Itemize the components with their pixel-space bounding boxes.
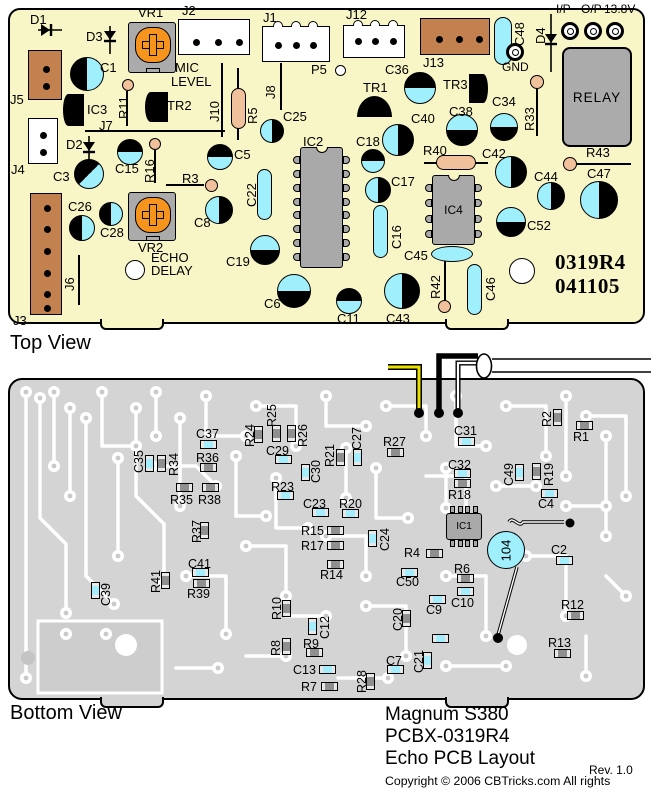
cap-c22 — [257, 169, 272, 220]
label-r34: R34 — [168, 453, 181, 476]
connector-j5 — [28, 50, 62, 100]
hole — [509, 258, 535, 284]
label-j5: J5 — [10, 93, 24, 106]
via-pad-center — [100, 390, 105, 395]
connector-j2 — [178, 19, 250, 55]
label-r43: R43 — [586, 146, 610, 159]
via-pad-center — [444, 574, 449, 579]
label-c21: C21 — [413, 650, 426, 673]
label-c15: C15 — [115, 162, 139, 175]
smd-r12 — [567, 611, 584, 620]
label-j4: J4 — [11, 163, 25, 176]
cap-c1 — [70, 57, 104, 91]
connector-j2-detail — [193, 39, 200, 46]
via-pad-center — [234, 454, 239, 459]
label-r35: R35 — [170, 494, 193, 507]
via-pad-center — [534, 484, 539, 489]
connector-j12-detail — [355, 38, 362, 45]
ic-ic1-detail — [465, 506, 470, 513]
via-pad-center — [68, 494, 73, 499]
label-d2: D2 — [66, 138, 83, 151]
via-pad-center — [184, 574, 189, 579]
label-c32: C32 — [448, 459, 471, 472]
smd-r27 — [387, 448, 404, 457]
via-pad-center — [244, 544, 249, 549]
label-d1: D1 — [30, 13, 47, 26]
ic-ic2-detail — [343, 198, 350, 206]
label-j7: J7 — [99, 119, 113, 132]
smd-c12 — [308, 618, 317, 635]
label-r13: R13 — [548, 637, 571, 650]
label-c9: C9 — [426, 604, 442, 617]
label-c6: C6 — [264, 297, 281, 310]
smd-r34 — [157, 455, 166, 472]
label-c20: C20 — [392, 608, 405, 631]
relay: RELAY — [562, 47, 632, 147]
via-pad-center — [68, 406, 73, 411]
terminal-ip — [561, 22, 579, 40]
mounting-hole — [507, 635, 527, 655]
diode-d3 — [102, 26, 118, 59]
label-c46: C46 — [484, 277, 497, 301]
via-pad-center — [24, 390, 29, 395]
label-c49: C49 — [503, 463, 516, 486]
label-c10: C10 — [451, 597, 474, 610]
via-pad-center — [178, 416, 183, 421]
label-c40: C40 — [411, 112, 435, 125]
via-pad-center — [216, 666, 221, 671]
cap-c6 — [277, 274, 311, 308]
trimmer-vr2 — [128, 192, 176, 241]
via-pad-center — [484, 444, 489, 449]
cable-clamp — [477, 354, 492, 378]
ic-ic2-detail — [293, 184, 300, 192]
smd-c31 — [458, 437, 475, 446]
smd-r8 — [282, 638, 291, 655]
via-pad-center — [504, 404, 509, 409]
smd-r38 — [202, 483, 219, 492]
label-c13: C13 — [293, 664, 316, 677]
board-tab — [100, 319, 164, 330]
via-pad-center — [564, 394, 569, 399]
label-i-p: I/P — [556, 3, 571, 15]
via-pad-center — [116, 554, 121, 559]
label-r26: R26 — [297, 424, 310, 447]
via-pad-center — [116, 456, 121, 461]
connector-j12-detail — [370, 20, 380, 26]
label-c29: C29 — [266, 445, 289, 458]
via-pad-center — [24, 676, 29, 681]
connector-j4 — [28, 118, 58, 164]
label-r5: R5 — [246, 107, 259, 124]
label-gnd: GND — [502, 61, 529, 73]
ic-ic2-detail — [293, 239, 300, 247]
footer-layout: Echo PCB Layout — [385, 748, 535, 770]
terminal-op-detail — [590, 28, 597, 35]
label-c52: C52 — [527, 219, 551, 232]
label-c7: C7 — [386, 655, 402, 668]
smd-r19 — [532, 463, 541, 480]
connector-j1-detail — [308, 21, 318, 27]
hole — [125, 260, 145, 280]
label-p5: P5 — [311, 63, 327, 76]
cap-c34 — [490, 113, 518, 141]
footer-model: Magnum S380 — [385, 704, 509, 726]
connector-j1 — [262, 26, 330, 62]
label-c18: C18 — [356, 135, 380, 148]
hole — [335, 65, 346, 76]
label-r21: R21 — [324, 444, 337, 467]
resistor-pad — [563, 157, 577, 171]
label-r38: R38 — [198, 494, 221, 507]
connector-j12-detail — [388, 20, 398, 26]
connector-j13-detail — [476, 36, 483, 43]
label-c11: C11 — [337, 312, 360, 325]
connector-j13-detail — [456, 36, 463, 43]
cap-c44 — [537, 182, 565, 210]
connector-j5-detail — [43, 83, 50, 90]
label-r3: R3 — [182, 172, 199, 185]
top-view-title: Top View — [10, 332, 91, 355]
cap-c25 — [260, 119, 284, 143]
smd-r26 — [287, 425, 296, 442]
label-c43: C43 — [386, 312, 410, 325]
label-r25: R25 — [266, 404, 279, 427]
label-r40: R40 — [423, 144, 447, 157]
via-pad-center — [52, 390, 57, 395]
trace-line — [78, 255, 80, 305]
label-j1: J1 — [263, 11, 277, 24]
resistor-pad — [205, 179, 218, 192]
via-pad-center — [504, 664, 509, 669]
trimmer-vr1-detail — [146, 68, 160, 73]
ic-ic4: IC4 — [432, 175, 475, 245]
connector-j1-detail — [310, 42, 317, 49]
resistor-pad — [530, 75, 544, 89]
ic-ic2-detail — [293, 253, 300, 261]
ic-ic4-detail — [425, 215, 432, 223]
label-r9: R9 — [303, 638, 319, 651]
ic-ic1-detail — [458, 540, 463, 547]
label-13-8v: 13.8V — [604, 3, 635, 15]
via-pad-center — [364, 424, 369, 429]
via-pad-center — [84, 416, 89, 421]
label-c23: C23 — [303, 498, 326, 511]
cap-c52 — [496, 207, 526, 237]
smd-r7 — [321, 682, 338, 691]
via-pad-center — [604, 504, 609, 509]
ic-ic1-detail — [473, 540, 478, 547]
label-r2: R2 — [541, 411, 554, 427]
label-tr3: TR3 — [443, 78, 468, 91]
smd-r1 — [576, 421, 593, 430]
label-r16: R16 — [143, 159, 156, 183]
smd-r25 — [272, 425, 281, 442]
ic-ic4-detail — [448, 175, 460, 181]
connector-j3-detail — [44, 291, 51, 298]
label-r11: R11 — [117, 96, 130, 119]
via-pad-center — [404, 654, 409, 659]
label-c34: C34 — [492, 95, 516, 108]
wire-lead — [444, 257, 446, 301]
ic-ic2-detail — [343, 184, 350, 192]
connector-j1-detail — [275, 42, 282, 49]
smd-c-unmarked — [432, 634, 449, 643]
via-pad-center — [494, 484, 499, 489]
cap-c46 — [467, 264, 482, 315]
label-r12: R12 — [561, 599, 584, 612]
connector-j1-detail — [291, 21, 301, 27]
label-r8: R8 — [270, 640, 283, 656]
disc-capacitor-detail: 104 — [498, 539, 513, 561]
connector-j3-detail — [44, 205, 51, 212]
label-c41: C41 — [188, 558, 211, 571]
via-pad-center — [374, 466, 379, 471]
via-pad-center — [254, 404, 259, 409]
copper-pour — [38, 621, 162, 693]
footer-copyright: Copyright © 2006 CBTricks.com All rights… — [385, 774, 653, 790]
connector-j3-detail — [44, 305, 51, 312]
smd-c49 — [515, 464, 524, 481]
connector-j2-detail — [236, 39, 243, 46]
component-ic3 — [63, 94, 84, 126]
label-c38: C38 — [449, 105, 473, 118]
ic-ic1-detail — [450, 540, 455, 547]
smd-c2 — [556, 556, 573, 565]
label-c44: C44 — [534, 170, 558, 183]
cap-c17 — [365, 177, 391, 203]
label-c25: C25 — [283, 110, 307, 123]
via-pad-center — [364, 574, 369, 579]
label-r17: R17 — [301, 540, 324, 553]
pad — [21, 651, 35, 665]
resistor-pad — [149, 138, 161, 150]
via-pad-center — [454, 394, 459, 399]
ic-ic2 — [300, 147, 343, 268]
terminal-13-8v — [606, 22, 624, 40]
trimmer-vr1 — [128, 22, 176, 73]
component-tr2 — [145, 92, 168, 122]
connector-j3 — [30, 193, 62, 315]
label-c22: C22 — [245, 183, 258, 207]
label-ic3: IC3 — [87, 103, 107, 116]
ic-ic1: IC1 — [446, 513, 482, 540]
via-pad-center — [484, 634, 489, 639]
label-r14: R14 — [320, 569, 343, 582]
label-c5: C5 — [234, 148, 251, 161]
label-r28: R28 — [356, 670, 369, 693]
via-pad-center — [38, 396, 43, 401]
trimmer-vr2-detail — [149, 204, 157, 226]
resistor-pad — [122, 79, 134, 91]
via-pad-center — [154, 390, 159, 395]
ic-ic1-detail — [465, 540, 470, 547]
disc-capacitor: 104 — [487, 531, 525, 569]
via-pad-center — [134, 444, 139, 449]
connector-j13 — [420, 18, 490, 55]
ic-ic1-detail — [458, 506, 463, 513]
pcb-layout-page: Top View Bottom View Magnum S380 PCBX-03… — [0, 0, 653, 790]
label-j8: J8 — [264, 85, 277, 99]
connector-j3-detail — [44, 248, 51, 255]
label-j12: J12 — [346, 8, 367, 21]
label-c12: C12 — [319, 616, 332, 639]
cap-c40 — [382, 124, 414, 156]
label-c3: C3 — [53, 170, 70, 183]
smd-r15 — [327, 526, 344, 535]
board-tab — [445, 319, 509, 330]
label-r36: R36 — [196, 452, 219, 465]
label-c48: C48 — [513, 22, 526, 46]
via-pad-center — [264, 514, 269, 519]
terminal-gnd-detail — [512, 49, 519, 56]
label-ic2: IC2 — [303, 135, 323, 148]
smd-r35 — [176, 483, 193, 492]
label-mic: MIC — [175, 61, 199, 74]
smd-r2 — [553, 409, 562, 426]
ic-ic2-detail — [293, 211, 300, 219]
label-r18: R18 — [448, 489, 471, 502]
connector-j13-detail — [436, 36, 443, 43]
via-pad-center — [224, 632, 229, 637]
via-pad-center — [564, 474, 569, 479]
footer-pcb: PCBX-0319R4 — [385, 726, 510, 748]
cap-c47 — [580, 181, 618, 219]
label-r7: R7 — [301, 681, 317, 694]
connector-j3-detail — [44, 226, 51, 233]
label-r23: R23 — [271, 481, 294, 494]
terminal-13-8v-detail — [612, 28, 619, 35]
label-r42: R42 — [429, 275, 442, 299]
via-pad-center — [624, 594, 629, 599]
smd-r18 — [454, 479, 471, 488]
bottom-view-title: Bottom View — [10, 702, 122, 725]
label-c47: C47 — [587, 167, 611, 180]
label-d3: D3 — [86, 30, 103, 43]
connector-j12-detail — [390, 38, 397, 45]
via-pad-center — [584, 414, 589, 419]
label-r15: R15 — [301, 525, 324, 538]
label-0319r4: 0319R4 — [555, 252, 626, 273]
smd-c27 — [353, 449, 362, 466]
cap-c28 — [99, 202, 123, 226]
terminal-ip-detail — [567, 28, 574, 35]
label-r4: R4 — [404, 547, 420, 560]
ic-ic2-detail — [293, 156, 300, 164]
mounting-hole — [115, 634, 137, 656]
smd-r4 — [426, 549, 443, 558]
via-pad-center — [624, 494, 629, 499]
label-c36: C36 — [385, 63, 409, 76]
label-j3: J3 — [13, 314, 27, 327]
cap-c26 — [69, 215, 95, 241]
diode-d4 — [543, 14, 559, 77]
label-j10: J10 — [208, 101, 221, 122]
via-pad-center — [134, 406, 139, 411]
label-j2: J2 — [182, 4, 196, 17]
via-pad-center — [604, 534, 609, 539]
cap-c19 — [250, 235, 280, 265]
label-c4: C4 — [538, 498, 554, 511]
label-tr2: TR2 — [167, 99, 192, 112]
label-c19: C19 — [226, 255, 250, 268]
via-pad-center — [154, 434, 159, 439]
label-041105: 041105 — [555, 276, 620, 297]
label-c31: C31 — [454, 425, 477, 438]
label-d4: D4 — [534, 27, 547, 44]
via-pad-center — [424, 434, 429, 439]
ic-ic4-detail — [425, 199, 432, 207]
via-pad-center — [584, 674, 589, 679]
label-c39: C39 — [100, 583, 113, 606]
label-level: LEVEL — [171, 75, 211, 88]
ic-ic2-detail — [343, 170, 350, 178]
label-r27: R27 — [383, 436, 406, 449]
resistor-pad — [438, 300, 451, 313]
label-r20: R20 — [339, 498, 362, 511]
via-pad-center — [104, 632, 109, 637]
connector-j12 — [343, 25, 405, 58]
label-c30: C30 — [310, 460, 323, 483]
via-pad-center — [364, 604, 369, 609]
cap-c45 — [431, 246, 473, 262]
ic-ic4-detail — [475, 215, 482, 223]
smd-r13 — [554, 649, 571, 658]
label-j13: J13 — [423, 56, 444, 69]
label-j6: J6 — [63, 277, 76, 291]
connector-j4-detail — [40, 149, 47, 156]
label-r33: R33 — [523, 107, 536, 131]
via-pad-center — [384, 404, 389, 409]
via-pad-center — [406, 516, 411, 521]
label-c42: C42 — [482, 147, 506, 160]
label-vr1: VR1 — [138, 6, 163, 19]
smd-c35 — [145, 455, 154, 472]
terminal-op — [584, 22, 602, 40]
trace-line — [221, 63, 223, 137]
connector-j5-detail — [43, 66, 50, 73]
via-pad-center — [284, 594, 289, 599]
connector-j12-detail — [372, 38, 379, 45]
cap-c5 — [207, 144, 233, 170]
resistor-r5 — [231, 88, 246, 129]
ic-ic1-detail — [450, 506, 455, 513]
ic-ic1-detail — [473, 506, 478, 513]
connector-j2-detail — [215, 39, 222, 46]
ic-ic2-detail — [293, 170, 300, 178]
via-pad-center — [64, 611, 69, 616]
label-r19: R19 — [543, 463, 556, 486]
via-pad-center — [604, 434, 609, 439]
cap-c3 — [74, 159, 104, 189]
connector-j4-detail — [40, 132, 47, 139]
via-pad-center — [64, 632, 69, 637]
via-pad-center — [52, 464, 57, 469]
label-c1: C1 — [100, 61, 117, 74]
label-c45: C45 — [404, 249, 428, 262]
connector-j3-detail — [44, 270, 51, 277]
cap-c16 — [373, 205, 388, 258]
smd-c37 — [200, 440, 217, 449]
smd-r17 — [327, 541, 344, 550]
smd-c24 — [368, 530, 377, 547]
cap-c18 — [361, 149, 385, 173]
label-r24: R24 — [244, 424, 257, 447]
via-pad-center — [544, 454, 549, 459]
ic-ic4-detail — [425, 230, 432, 238]
cap-c43 — [384, 273, 420, 309]
label-c37: C37 — [196, 428, 219, 441]
